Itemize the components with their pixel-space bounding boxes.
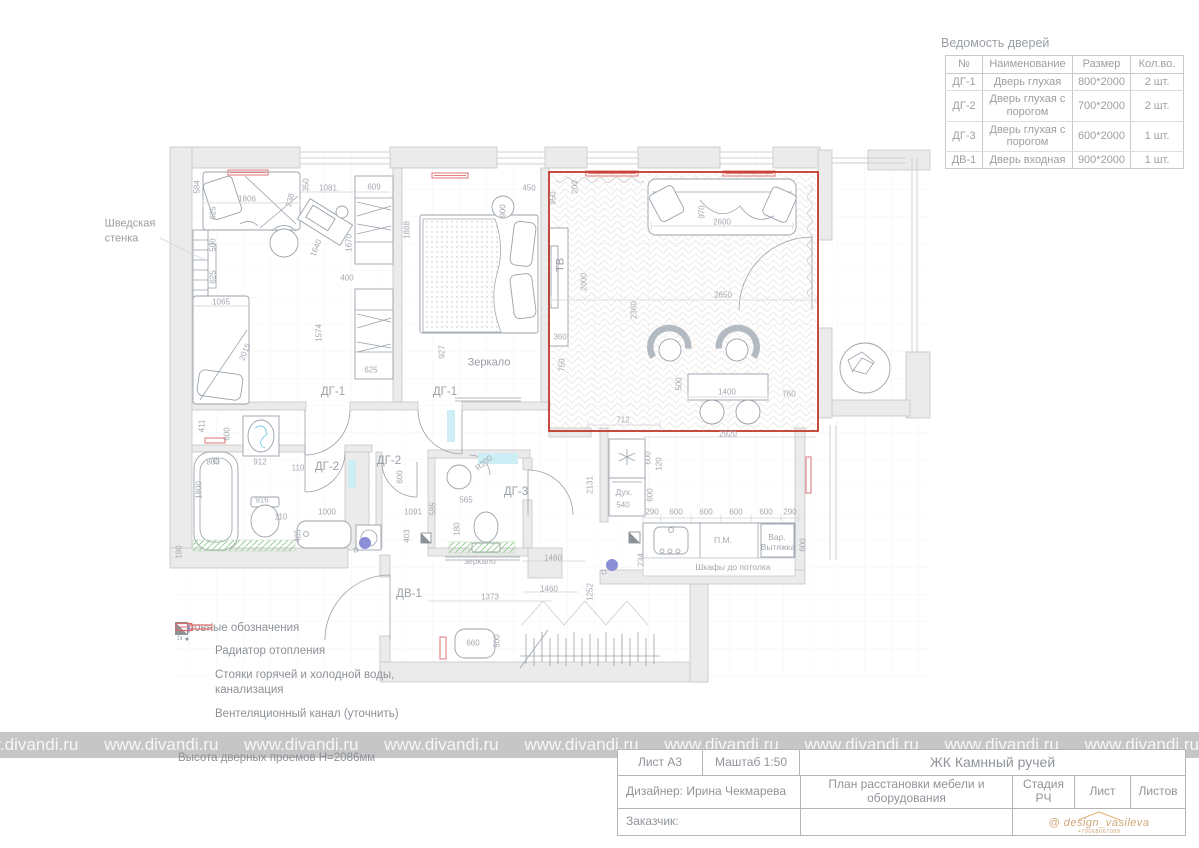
pillow xyxy=(509,221,536,267)
risers-icon xyxy=(175,668,215,669)
stage-value: РЧ xyxy=(1035,792,1051,806)
scale: Маштаб 1:50 xyxy=(703,750,800,775)
drawing-title: План расстановки мебели и оборудования xyxy=(801,776,1013,808)
blanket xyxy=(423,219,501,332)
legend-item: Вентеляционный канал (уточнить) xyxy=(175,707,475,722)
designer-logo: @ design_vasileva +79068067089 xyxy=(1013,809,1185,835)
doors-table-cell: 600*2000 xyxy=(1073,121,1131,151)
bar-table xyxy=(688,374,768,400)
project-name: ЖК Камнный ручей xyxy=(800,750,1185,775)
pillow xyxy=(196,369,243,401)
doors-table-cell: ДВ-1 xyxy=(946,151,983,169)
doors-table-cell: 2 шт. xyxy=(1131,91,1184,121)
vanity-sink xyxy=(297,521,351,548)
legend-title: Условные обозначения xyxy=(175,622,475,634)
legend-item-label: Вентеляционный канал (уточнить) xyxy=(215,707,399,722)
bar-stool xyxy=(736,400,760,424)
legend-item: Радиатор отопления xyxy=(175,644,475,659)
doors-col-header: Размер xyxy=(1073,56,1131,74)
bathtub xyxy=(194,452,238,550)
tv-unit xyxy=(549,228,568,346)
pillow xyxy=(509,273,536,319)
tile-hatch xyxy=(193,540,295,551)
wicker-chair xyxy=(840,343,890,393)
legend-item-label: Стояки горячей и холодной воды, канализа… xyxy=(215,668,445,698)
doors-table-row: ДВ-1Дверь входная900*20001 шт. xyxy=(946,151,1184,169)
desk-chair xyxy=(270,229,298,257)
watermark-text: www.divandi.ru xyxy=(384,735,498,755)
doors-table-cell: ДГ-3 xyxy=(946,121,983,151)
fridge xyxy=(609,439,645,478)
legend-items: Радиатор отопленияСтояки горячей и холод… xyxy=(175,644,475,746)
doors-table-cell: Дверь глухая xyxy=(983,73,1073,91)
doors-table-cell: 800*2000 xyxy=(1073,73,1131,91)
doors-col-header: Кол.во. xyxy=(1131,56,1184,74)
doors-table-cell: Дверь входная xyxy=(983,151,1073,169)
client: Заказчик: xyxy=(618,809,801,835)
doors-table-cell: 1 шт. xyxy=(1131,121,1184,151)
client-value-empty xyxy=(801,809,1013,835)
doors-table: №НаименованиеРазмерКол.во.ДГ-1Дверь глух… xyxy=(945,55,1184,169)
doors-table-cell: ДГ-2 xyxy=(946,91,983,121)
stage-cell: Стадия РЧ xyxy=(1013,776,1075,808)
sheets-label: Листов xyxy=(1131,776,1185,808)
doors-table-cell: ДГ-1 xyxy=(946,73,983,91)
sofa xyxy=(648,179,797,235)
vent-icon xyxy=(629,532,640,543)
legend-item-label: Радиатор отопления xyxy=(215,644,325,659)
watermark-text: www.divandi.ru xyxy=(0,735,78,755)
doors-table-cell: 2 шт. xyxy=(1131,73,1184,91)
doors-table-body: №НаименованиеРазмерКол.во.ДГ-1Дверь глух… xyxy=(946,56,1184,169)
doors-table-title: Ведомость дверей xyxy=(941,36,1049,50)
legend-item: Стояки горячей и холодной воды, канализа… xyxy=(175,668,475,698)
stage-label: Стадия xyxy=(1023,778,1064,792)
doors-col-header: № xyxy=(946,56,983,74)
kitchen-sink xyxy=(654,527,688,554)
doors-table-row: ДГ-3Дверь глухая с порогом600*20001 шт. xyxy=(946,121,1184,151)
tall-cabinets xyxy=(643,558,795,576)
vent-icon xyxy=(175,707,215,708)
doors-table-cell: 900*2000 xyxy=(1073,151,1131,169)
vent-icon xyxy=(421,533,431,543)
wc-sink xyxy=(447,465,471,489)
desk-lamp xyxy=(336,206,348,218)
doors-table-cell: Дверь глухая с порогом xyxy=(983,91,1073,121)
stool xyxy=(492,196,514,218)
logo-phone: +79068067089 xyxy=(1078,829,1121,835)
doors-table-cell: Дверь глухая с порогом xyxy=(983,121,1073,151)
oven xyxy=(609,478,645,516)
wardrobe-top xyxy=(355,176,393,264)
balcony xyxy=(840,343,890,393)
logo-roof-icon xyxy=(1076,811,1122,821)
washbasin xyxy=(243,416,279,456)
tile-hatch xyxy=(449,542,515,553)
sheet-label: Лист xyxy=(1075,776,1131,808)
doors-table-cell: 700*2000 xyxy=(1073,91,1131,121)
doors-table-cell: 1 шт. xyxy=(1131,151,1184,169)
sheet-format: Лист А3 xyxy=(618,750,703,775)
cooktop xyxy=(761,524,794,557)
doors-table-row: ДГ-2Дверь глухая с порогом700*20002 шт. xyxy=(946,91,1184,121)
radiator-icon xyxy=(175,644,215,645)
door-height-note: Высота дверных проемов Н=2086мм xyxy=(178,752,375,764)
doors-table-row: ДГ-1Дверь глухая800*20002 шт. xyxy=(946,73,1184,91)
wardrobe-bottom xyxy=(355,289,393,379)
title-block: Лист А3 Маштаб 1:50 ЖК Камнный ручей Диз… xyxy=(617,749,1186,836)
doors-col-header: Наименование xyxy=(983,56,1073,74)
designer: Дизайнер: Ирина Чекмарева xyxy=(618,776,801,808)
toilet xyxy=(251,497,279,537)
bar-stool xyxy=(700,400,724,424)
